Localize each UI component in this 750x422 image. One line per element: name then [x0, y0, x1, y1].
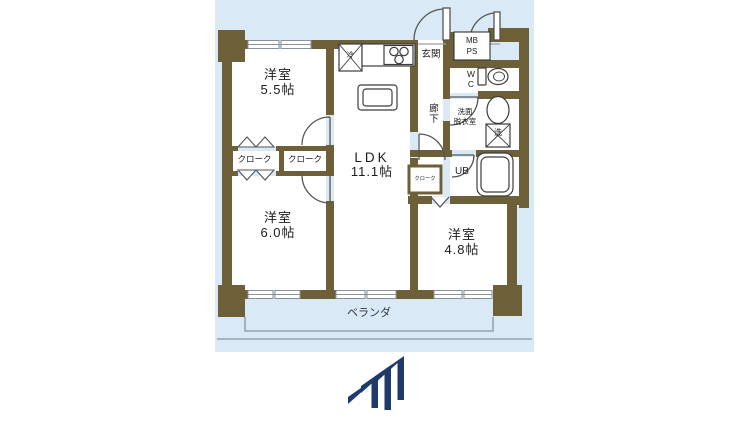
mbps-door-leaf — [494, 12, 500, 40]
closet3-box — [409, 166, 441, 193]
entrance-door-leaf — [443, 8, 450, 40]
kitchen-island — [358, 85, 397, 110]
toilet-icon — [478, 68, 508, 85]
room-floors — [232, 40, 519, 290]
washer-box — [486, 124, 510, 147]
floorplan-drawing — [0, 0, 750, 422]
floorplan-page: { "plan": { "bg_color": "#d9eaf6", "wall… — [0, 0, 750, 422]
company-logo — [348, 356, 404, 410]
sink-icon — [487, 97, 509, 124]
mbps-box — [454, 32, 490, 60]
fridge-box — [339, 44, 362, 71]
bathtub-icon — [477, 153, 513, 196]
